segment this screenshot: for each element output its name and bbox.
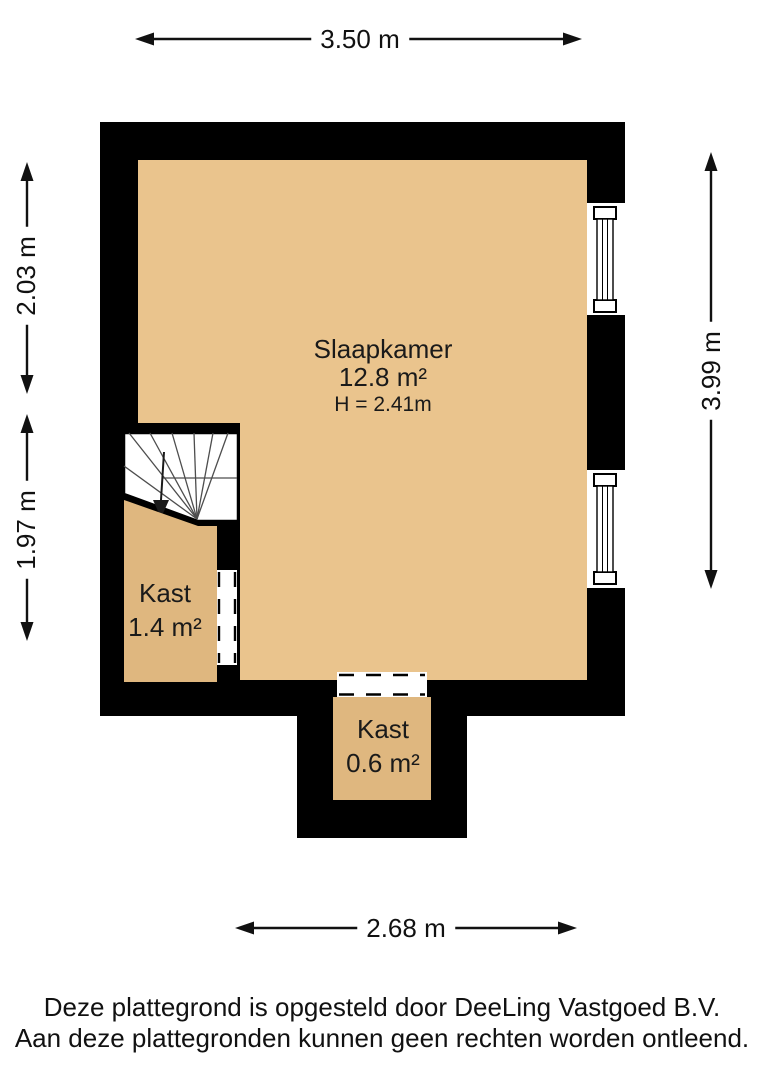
window-top <box>587 203 625 315</box>
doorway-kast-left <box>217 570 237 665</box>
dimension-label-left-lower: 1.97 m <box>11 481 41 579</box>
room-name-kast-left: Kast <box>128 576 202 610</box>
dimension-label-top: 3.50 m <box>311 24 409 54</box>
doorway-kast-bottom <box>337 672 427 697</box>
room-label-slaapkamer: Slaapkamer 12.8 m² H = 2.41m <box>314 335 453 419</box>
room-area-slaapkamer: 12.8 m² <box>314 363 453 391</box>
room-name-slaapkamer: Slaapkamer <box>314 335 453 363</box>
floorplan-page: Slaapkamer 12.8 m² H = 2.41m Kast 1.4 m²… <box>0 0 764 1080</box>
dimension-label-right: 3.99 m <box>696 322 726 420</box>
window-bottom <box>587 470 625 588</box>
footer-disclaimer-line1: Deze plattegrond is opgesteld door DeeLi… <box>0 992 764 1023</box>
footer-disclaimer-line2: Aan deze plattegronden kunnen geen recht… <box>0 1023 764 1054</box>
room-area-kast-bottom: 0.6 m² <box>346 746 420 780</box>
dimension-label-left-upper: 2.03 m <box>11 227 41 325</box>
room-ceiling-height-slaapkamer: H = 2.41m <box>314 391 453 419</box>
room-label-kast-bottom: Kast 0.6 m² <box>346 712 420 780</box>
dimension-label-bottom: 2.68 m <box>357 913 455 943</box>
room-area-kast-left: 1.4 m² <box>128 610 202 644</box>
room-name-kast-bottom: Kast <box>346 712 420 746</box>
room-label-kast-left: Kast 1.4 m² <box>128 576 202 644</box>
